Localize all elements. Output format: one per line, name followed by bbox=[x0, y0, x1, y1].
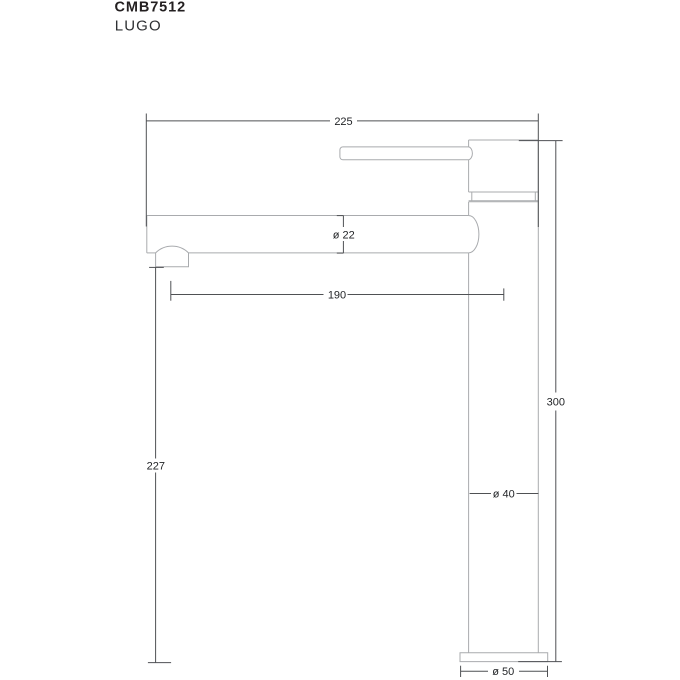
svg-text:190: 190 bbox=[328, 289, 346, 301]
svg-text:ø 50: ø 50 bbox=[492, 666, 514, 678]
svg-text:225: 225 bbox=[334, 116, 352, 128]
svg-text:CMB7512: CMB7512 bbox=[115, 0, 187, 15]
svg-text:LUGO: LUGO bbox=[115, 18, 162, 35]
svg-text:ø 22: ø 22 bbox=[333, 230, 355, 242]
svg-text:227: 227 bbox=[147, 460, 165, 472]
svg-text:ø 40: ø 40 bbox=[493, 488, 515, 500]
svg-text:300: 300 bbox=[547, 396, 565, 408]
